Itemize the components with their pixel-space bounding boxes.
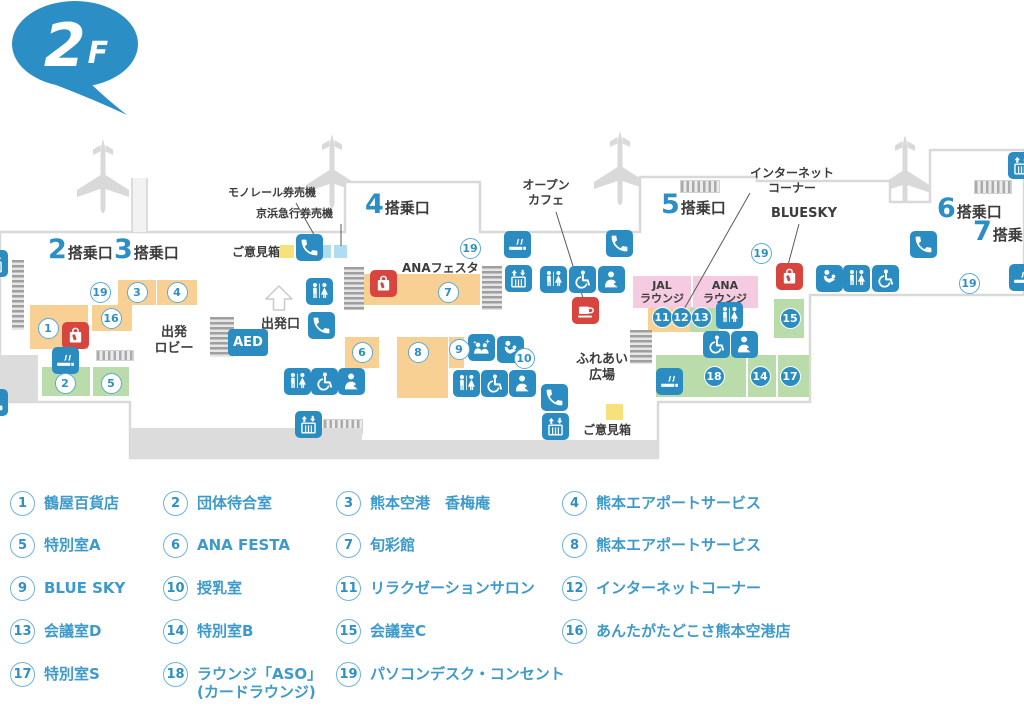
legend-number: 5 <box>10 533 35 558</box>
legend-item-11: 11リラクゼーションサロン <box>336 576 535 601</box>
legend-label: BLUE SKY <box>44 576 125 597</box>
legend-number: 11 <box>336 576 361 601</box>
legend-item-15: 15会議室C <box>336 619 426 644</box>
legend-item-8: 8熊本エアポートサービス <box>562 533 761 558</box>
legend-item-10: 10授乳室 <box>163 576 242 601</box>
legend-label: あんたがたどこさ熊本空港店 <box>596 619 791 640</box>
legend-label: 団体待合室 <box>197 491 272 512</box>
airport-floor-map-page: モノレール券売機京浜急行券売機ご意見箱オープン カフェインターネット コーナーB… <box>0 0 1024 712</box>
legend-item-16: 16あんたがたどこさ熊本空港店 <box>562 619 791 644</box>
legend-number: 15 <box>336 619 361 644</box>
legend-number: 8 <box>562 533 587 558</box>
legend-item-14: 14特別室B <box>163 619 253 644</box>
legend-label: 会議室C <box>370 619 426 640</box>
legend-label: リラクゼーションサロン <box>370 576 535 597</box>
legend-label: 熊本空港 香梅庵 <box>370 491 490 512</box>
legend-number: 2 <box>163 491 188 516</box>
legend-label: 特別室A <box>44 533 101 554</box>
legend-number: 12 <box>562 576 587 601</box>
legend-item-13: 13会議室D <box>10 619 101 644</box>
legend-item-3: 3熊本空港 香梅庵 <box>336 491 490 516</box>
legend-number: 3 <box>336 491 361 516</box>
legend-label: パソコンデスク・コンセント <box>370 662 565 683</box>
legend-number: 10 <box>163 576 188 601</box>
legend-label: 特別室S <box>44 662 100 683</box>
legend-item-6: 6ANA FESTA <box>163 533 290 558</box>
legend-item-4: 4熊本エアポートサービス <box>562 491 761 516</box>
legend-item-1: 1鶴屋百貨店 <box>10 491 119 516</box>
legend-number: 7 <box>336 533 361 558</box>
legend-number: 9 <box>10 576 35 601</box>
legend-number: 14 <box>163 619 188 644</box>
legend-label: 旬彩館 <box>370 533 415 554</box>
legend: 1鶴屋百貨店2団体待合室3熊本空港 香梅庵4熊本エアポートサービス5特別室A6A… <box>0 0 1024 712</box>
legend-number: 18 <box>163 662 188 687</box>
legend-item-2: 2団体待合室 <box>163 491 272 516</box>
legend-label: 熊本エアポートサービス <box>596 533 761 554</box>
legend-number: 17 <box>10 662 35 687</box>
legend-number: 6 <box>163 533 188 558</box>
legend-number: 4 <box>562 491 587 516</box>
legend-label: 会議室D <box>44 619 101 640</box>
legend-label: ANA FESTA <box>197 533 290 554</box>
legend-item-9: 9BLUE SKY <box>10 576 125 601</box>
legend-number: 16 <box>562 619 587 644</box>
legend-number: 13 <box>10 619 35 644</box>
legend-number: 19 <box>336 662 361 687</box>
legend-item-12: 12インターネットコーナー <box>562 576 761 601</box>
legend-label: ラウンジ「ASO」 (カードラウンジ) <box>197 662 322 701</box>
legend-label: 熊本エアポートサービス <box>596 491 761 512</box>
legend-label: 授乳室 <box>197 576 242 597</box>
legend-item-5: 5特別室A <box>10 533 101 558</box>
legend-label: 特別室B <box>197 619 253 640</box>
legend-item-19: 19パソコンデスク・コンセント <box>336 662 565 687</box>
legend-item-18: 18ラウンジ「ASO」 (カードラウンジ) <box>163 662 322 701</box>
legend-item-7: 7旬彩館 <box>336 533 415 558</box>
legend-number: 1 <box>10 491 35 516</box>
legend-label: 鶴屋百貨店 <box>44 491 119 512</box>
legend-label: インターネットコーナー <box>596 576 761 597</box>
legend-item-17: 17特別室S <box>10 662 100 687</box>
